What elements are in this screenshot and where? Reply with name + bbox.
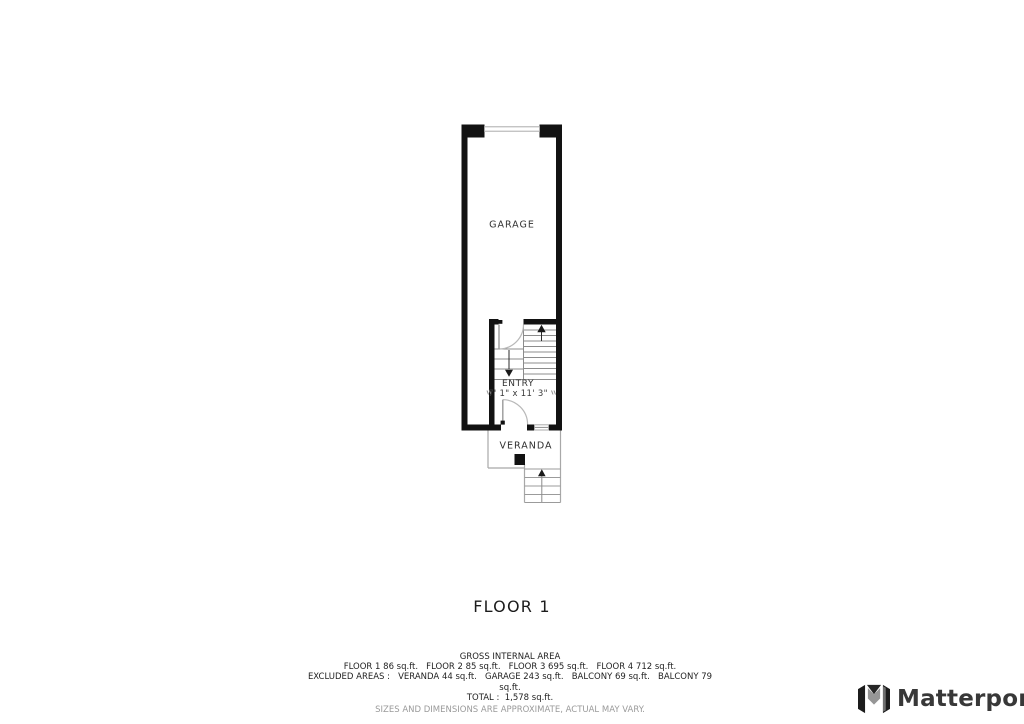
door-hinge-block [498, 320, 503, 324]
garage-door-panel [485, 127, 540, 131]
stairs-up-arrow-icon [537, 325, 545, 332]
wall-left [462, 125, 468, 431]
interior-wall-horizontal [524, 319, 557, 325]
veranda-stairs [525, 469, 561, 503]
entry-door-bottom [501, 400, 528, 425]
door-swing-arc [499, 325, 524, 350]
matterport-logo: Matterport [858, 684, 1024, 714]
room-label-garage: GARAGE [489, 220, 535, 231]
matterport-wordmark: Matterport [897, 686, 1024, 712]
staircase-main [524, 325, 557, 380]
floor-areas-line: FLOOR 1 86 sq.ft. FLOOR 2 85 sq.ft. FLOO… [0, 662, 1020, 672]
stairs-up-arrow-icon [538, 469, 546, 476]
floor-title: FLOOR 1 [0, 597, 1024, 616]
garage-door [485, 127, 540, 131]
gross-internal-area-heading: GROSS INTERNAL AREA [0, 652, 1020, 662]
entry-door-top [498, 320, 524, 350]
interior-wall-vertical [489, 319, 495, 431]
matterport-icon [858, 684, 890, 714]
staircase-lower [495, 349, 524, 380]
room-label-entry: ENTRY [502, 379, 534, 389]
room-label-veranda: VERANDA [500, 441, 553, 452]
window [535, 425, 549, 430]
wall-bottom-mid-segment [527, 425, 535, 431]
stairs-down-arrow-icon [505, 370, 513, 377]
floorplan-page: GARAGE ENTRY 7' 1" x 11' 3" VERANDA FLOO… [0, 0, 1024, 724]
stair-treads [524, 330, 557, 380]
veranda-pillar [515, 454, 526, 465]
door-swing-arc [503, 400, 528, 425]
wall-right [556, 125, 562, 431]
door-hinge-block [501, 421, 505, 425]
wall-bottom-left-segment [462, 425, 502, 431]
room-dimensions-entry: 7' 1" x 11' 3" [488, 389, 548, 399]
excluded-areas-line: EXCLUDED AREAS : VERANDA 44 sq.ft. GARAG… [0, 672, 1020, 682]
wall-bottom-right-segment [549, 425, 563, 431]
